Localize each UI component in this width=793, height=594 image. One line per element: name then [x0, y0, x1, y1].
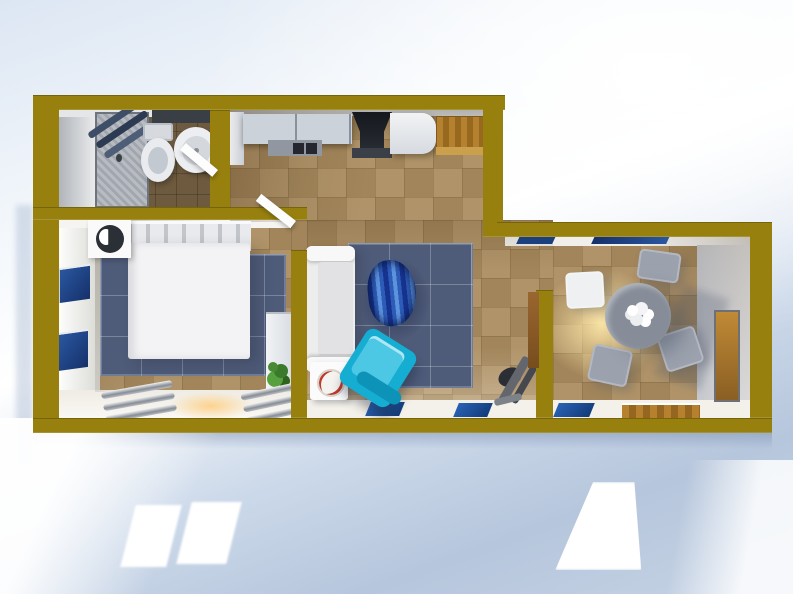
sofa-seat-cushions: [318, 262, 353, 356]
bedroom-doorway-floor: [291, 220, 307, 253]
wall-dining-right: [750, 222, 772, 418]
bedroom-window-1: [58, 264, 90, 303]
kitchen-stove-front: [352, 148, 392, 158]
dining-entry-door: [714, 310, 740, 402]
wall-dining-top: [497, 222, 772, 237]
plant: [268, 362, 278, 372]
wall-kitchen-right: [483, 95, 503, 237]
bedroom-window-2: [57, 329, 88, 371]
shower-drain: [116, 154, 122, 162]
brown-door-at-stub: [528, 292, 539, 368]
wall-left: [33, 95, 59, 433]
double-bed: [128, 243, 250, 359]
flower-centerpiece: [627, 305, 638, 316]
dining-window-strip-2: [591, 236, 670, 244]
dining-table: [605, 283, 671, 349]
wall-bottom: [33, 418, 772, 433]
dining-window-strip-1: [516, 236, 556, 244]
bg-white-wedge-bottom-right: [640, 460, 793, 594]
floor-mat-2: [453, 403, 493, 417]
floor-mat-3: [553, 403, 595, 417]
kitchen-wood-shelf: [436, 147, 484, 155]
dining-chair-top: [636, 248, 682, 284]
wall-bedroom-right: [291, 250, 307, 418]
sofa-armrest-top: [306, 246, 355, 261]
hob-burner-1: [293, 143, 304, 154]
bathroom-dark-shelf: [152, 110, 217, 123]
wall-top: [33, 95, 505, 110]
kitchen-wood-cabinet: [436, 116, 486, 148]
kitchen-fridge: [390, 113, 436, 154]
bedroom-wardrobe: [266, 312, 292, 392]
dining-chair-left: [565, 271, 605, 309]
toilet-bowl-inner: [148, 147, 168, 174]
hob-burner-2: [306, 143, 317, 154]
bathroom-left-wall-face: [59, 110, 97, 207]
dining-chair-bottom: [587, 343, 634, 388]
floorplan-render: [0, 0, 793, 594]
